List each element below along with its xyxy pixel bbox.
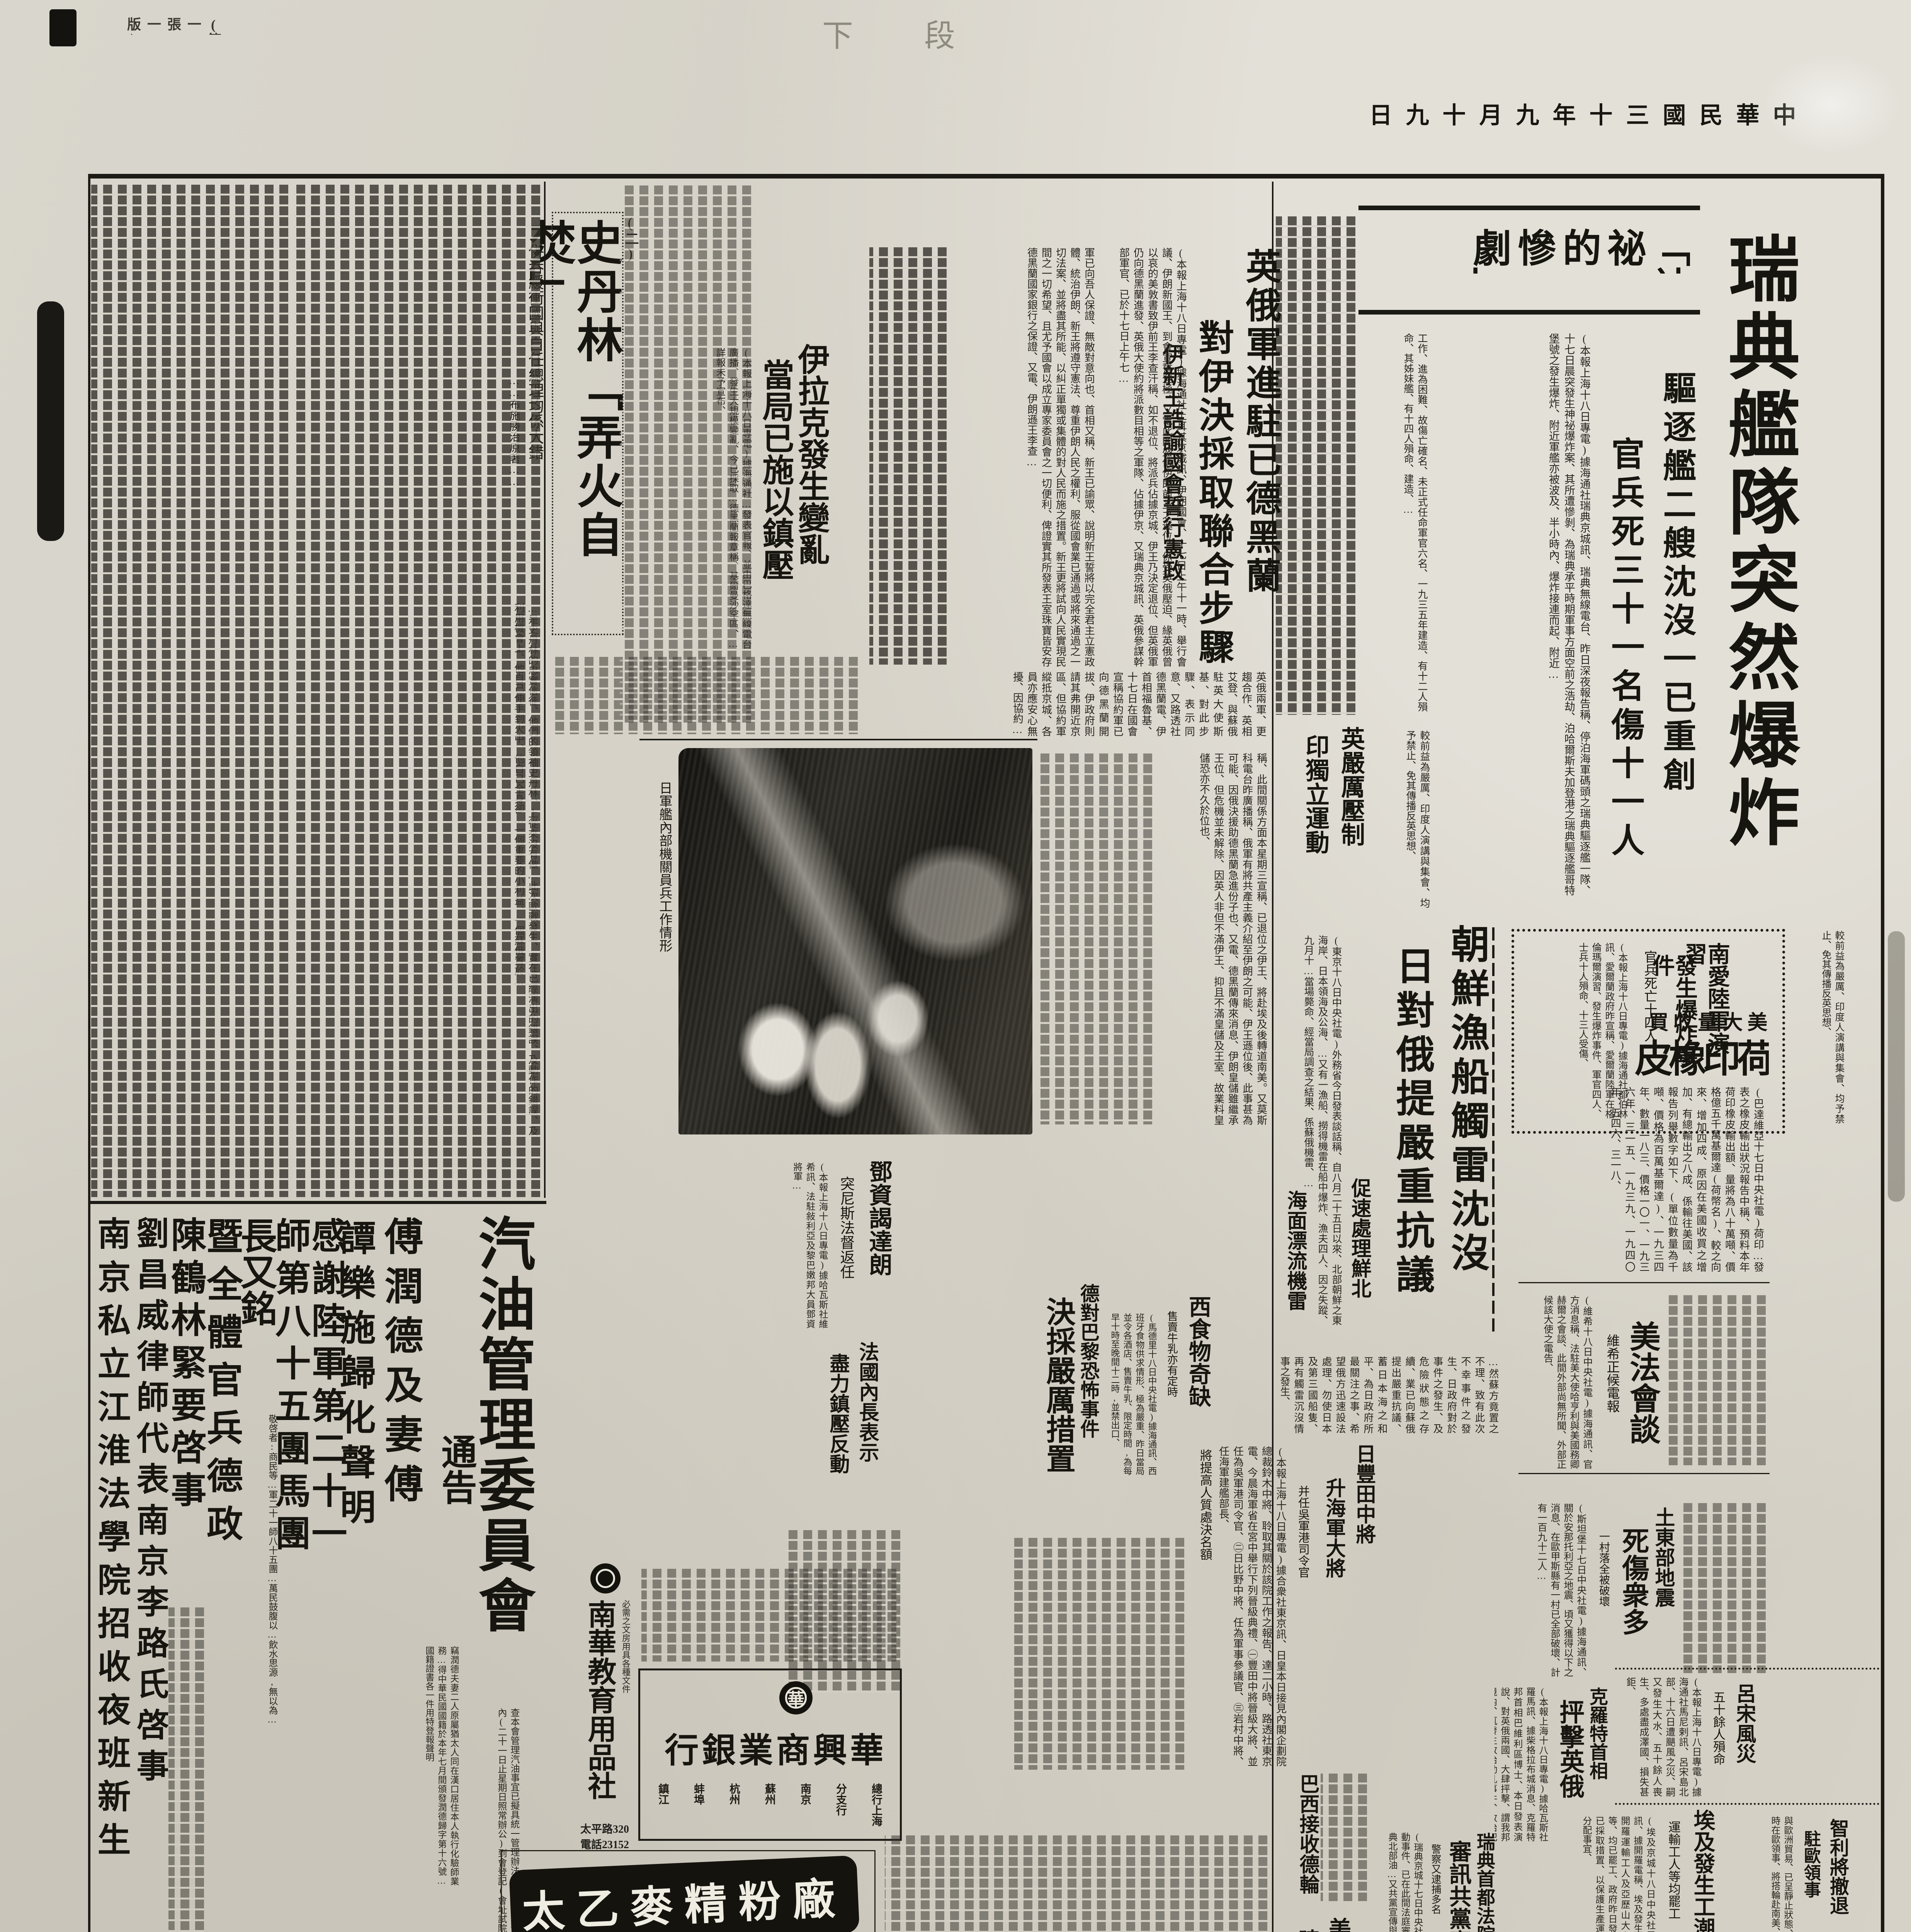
article-body: (本報上海十八日專電)據海通社馬尼剌訊、呂宋島北部、十六日遭颶風之災、嗣又發生大… [1627,1677,1702,1797]
korea-headline-2: 日對俄提嚴重抗議 [1386,946,1431,1332]
bank-logo-icon: 華 [779,1681,813,1714]
lead-subhead-1: 驅逐艦二艘沈沒一已重創 [1654,371,1693,827]
turkey-headline-2: 死傷衆多 [1615,1527,1647,1655]
rubber-headline-2: 荷印橡皮 [1631,1039,1769,1082]
article-body: 稱、此間關係方面本星期三宣稱、已退位之伊王、將赴埃及後轉道南美。又莫斯科電台昨廣… [1158,753,1268,1125]
usfrance-subhead: 維希正候電報 [1598,1334,1618,1461]
article-body: (東京十八日中央社電)外務省今日發表談話稱、自八月二十五日以來、北部朝鮮之東海岸… [1303,935,1343,1325]
egypt-subhead: 運輸工人等均罷工 [1662,1821,1680,1932]
croatia-headline-1: 克羅特首相 [1583,1687,1606,1795]
illegible-text-block [869,247,947,665]
spain-subhead: 售賣牛乳亦有定時 [1161,1311,1177,1458]
india-headline-2: 印獨立運動 [1297,734,1327,916]
luzon-subhead: 五十餘人殞命 [1708,1691,1725,1787]
article-body: (斯坦堡十七日中央社電)據海通訊、關於安那托利亞之地震、頃又獲得以下之消息、在歐… [1524,1503,1587,1677]
article-body: 軍已向吾人保證、無敵對意向也、首相又稱、新王已諭眾、說明新王誓將以完全君主立憲政… [953,247,1096,667]
ad-petrol-title: 汽油管理委員會 [470,1214,530,1678]
article-body: (馬德里十八日中央社電)據海通訊、西班牙食物供求情形、極為嚴重、昨日當局並令各酒… [1103,1313,1158,1475]
article-body: 工作、進為困難、故傷亡確名、未正式任命軍官六名、一九三五年建造、有十二人殞命、其… [1359,333,1429,712]
taiyi-banner: 太乙麥精粉廠 [509,1855,860,1932]
wavy-rule [1492,927,1494,1333]
ad-lawyer: 劉昌威律師代表南京李路氏啓事 [133,1216,166,1904]
left-rule [88,174,90,1932]
date-line: 中華民國三十年九月十九日 [1333,103,1800,130]
ad-chen: 陳鶴林緊要啓事 [171,1216,203,1580]
toyoda-headline-2: 升海軍大將 [1319,1478,1344,1586]
dentz-headline: 鄧資謁達朗 [862,1160,890,1311]
edge-smudge [37,301,64,541]
egypt-headline: 埃及發生工潮 [1687,1809,1713,1932]
korea-subhead-2: 海面漂流機雷 [1280,1190,1305,1352]
ad-nanhua-title: 南華教育用品社 [580,1600,614,1816]
article-body: …然蘇方竟置之不理、致有此次不幸事件之發生、日政府對於事件之發生、及危險狀態之存… [1277,1356,1500,1434]
franceint-headline-2: 盡力鎮壓反動 [824,1353,848,1515]
edge-smudge [1888,931,1905,1202]
article-body: 與歐洲貿易、已呈靜止狀態、現時在歐領事、將搭輪赴南美、 [1743,1816,1794,1932]
bank-ad-box: 華 華興商業銀行 總行上海分支行南京蘇州杭州蚌埠鎮江 [638,1668,902,1841]
paris-headline-1: 德對巴黎恐怖事件 [1076,1284,1098,1458]
swcourt-subhead: 警察又逮捕多名 [1426,1844,1440,1932]
ad-thanks-line3: 長又銘 [240,1217,274,1379]
bank-branch-label: 蚌埠 [690,1783,706,1830]
ad-thanks-line2: 師第八十五團馬團 [273,1217,308,1650]
bank-logo-char: 華 [779,1681,813,1714]
article-body: (維希十八日中央社電)據海通訊、官方消息稱、法駐美大使哈亨利與美國務卿赫爾之會談… [1524,1295,1593,1469]
india-headline-1: 英嚴厲壓制 [1332,726,1362,896]
article-body: (本報上海十八日專電)據海通社土耳其京城訊、伊朗國會、十七日上午十一時、舉行會議… [1100,247,1188,667]
photo-caption: 日軍艦內部機關員兵工作情形 [648,781,671,1036]
illegible-text-block [1276,216,1355,715]
ad-nanhua-address: 太平路320 [580,1821,629,1836]
iran-headline-2: 對伊決採取聯合步驟 [1192,319,1231,682]
illegible-text-block [620,185,751,723]
bank-branch-label: 南京 [797,1783,813,1830]
ad-nanhua-phone: 電話23152 [580,1836,629,1852]
article-body: (瑞典京城十七日中央社電)據海通訊、瑞典共黨活動事件、已在此間法庭審訊、警察又逮… [1377,1832,1423,1932]
ad-petrol-notice: 通告 [441,1434,474,1530]
masthead-fragment: 段 [924,11,955,56]
divider-rule [1518,1282,1770,1283]
newspaper-page: 中華民國三十年九月十九日 (第一張一版) 下 段 「神祕的慘劇」! 瑞典艦隊突然… [0,0,1911,1932]
chile-headline-2: 駐歐領事 [1800,1830,1819,1927]
spain-headline: 西食物奇缺 [1184,1295,1209,1427]
kicker-box: 「神祕的慘劇」! [1358,206,1700,315]
divider-rule [1518,1473,1770,1474]
article-body: 英俄兩軍、更趨合作、英相艾登、與蘇俄駐英大使斯基、對此步驟、表示同意、又路透社德… [869,672,1267,736]
bank-branch-label: 杭州 [726,1783,741,1830]
warship-photo [678,748,1032,1134]
korea-headline-1: 朝鮮漁船觸雷沈沒 [1440,924,1486,1291]
illegible-text-block [168,1607,204,1932]
ad-nanhua-side: 必需之文房用具各種文件 [614,1600,631,1801]
illegible-text-block [1321,1774,1367,1901]
article-body: 較前益為嚴厲、印度人演講與集會、均予禁止、免其傳播反英思想、 [1365,730,1431,908]
franceint-headline-1: 法國內長表示 [853,1342,877,1504]
illegible-text-block [641,1569,896,1662]
section-rule [88,1201,546,1204]
luzon-headline: 呂宋風災 [1730,1683,1754,1772]
article-body: (本報上海十八日專電)據海通社瑞典京城訊、瑞典無線電台、昨日深夜報告稱、停泊海軍… [1434,333,1592,896]
article-body: (埃及京城十八日中央社電)據海通訊、據開羅電稱、埃及發生罷工事件、開羅運輸工人及… [1579,1816,1656,1932]
column-rule [544,182,546,1198]
top-rule [88,174,1884,179]
bank-branches: 總行上海分支行南京蘇州杭州蚌埠鎮江 [652,1783,884,1830]
toyoda-subhead: 并任吳軍港司令官 [1291,1485,1308,1617]
iraq-headline-1: 伊拉克發生變亂 [791,343,827,629]
usfrance-headline: 美法會談 [1622,1321,1658,1460]
article-body: (巴達維亞十七日中央社電)荷印…發表之橡皮輸出狀況報告中稱、預料本年荷印橡皮輸出… [1519,1087,1765,1272]
bank-branch-label: 鎮江 [655,1783,670,1830]
swcourt-headline-2: 審訊共黨案件 [1444,1840,1470,1932]
article-body: (本報上海十八日專電)據哈瓦斯社羅馬訊、據柴格拉布城消息、克羅特邦首相巴維利區博… [1494,1687,1549,1842]
nanhua-logo-icon [590,1563,621,1594]
swcourt-headline-1: 瑞典首都法院 [1471,1832,1493,1932]
illegible-text-block [1014,1538,1184,1770]
paris-subhead: 將提高人質處決名額 [1195,1449,1212,1658]
dotted-rule [1615,1668,1883,1671]
lead-headline: 瑞典艦隊突然爆炸 [1714,232,1793,866]
illegible-text-block [1040,753,1152,1124]
turkey-subhead: 一村落全被破壞 [1593,1531,1609,1662]
croatia-headline-2: 抨擊英俄 [1554,1699,1583,1815]
illegible-text-block [293,185,540,1197]
rubber-headline-1: 美大量收買 [1637,1012,1767,1034]
article-body: (本報上海十八日專電)據哈瓦斯社維希訊、法駐敍利亞及黎巴嫩邦大員鄧資將軍… [785,1162,828,1328]
taiyi-ad-box: 太乙麥精粉廠 雙桃牌 麥精粉 手紅味一 牌听味一 總經理朱敬記行各南貨食店均有售 [501,1850,876,1932]
paris-headline-2: 決採嚴厲措置 [1039,1297,1073,1529]
ad-fu-line2: 譚樂施歸化聲明 [337,1219,372,1668]
bank-branch-label: 分支行 [833,1783,848,1830]
ad-thanks-line4: 暨全體官兵德政 [204,1217,240,1627]
edition-note: (第一張一版) [53,17,223,35]
ad-fu-line1: 傅潤德及妻傅 [379,1216,420,1626]
dotted-rule [1615,1803,1883,1806]
illegible-text-block [91,185,288,1197]
iraq-headline-2: 當局已施以鎮壓 [756,359,791,645]
illegible-text-block [885,1835,1267,1932]
article-body: 較前益為嚴厲、印度人演講與集會、均予禁止、免其傳播反英思想、 [1787,930,1845,1124]
korea-subhead-1: 促速處理鮮北 [1344,1178,1369,1344]
arsenal-headline-2: 建造新軍火廠 [1295,1929,1319,1932]
dentz-subhead: 突尼斯法督返任 [833,1176,853,1311]
kicker-headline: 「神祕的慘劇」! [1365,228,1690,274]
ad-school: 南京私立江淮法學院招收夜班新生 [94,1216,128,1932]
bank-branch-label: 蘇州 [762,1783,777,1830]
masthead-fragment: 下 [822,11,853,56]
brazil-headline: 巴西接收德輪 [1293,1774,1318,1901]
bank-name: 華興商業銀行 [658,1732,882,1771]
illegible-text-block [1681,1503,1766,1673]
illegible-text-block [1665,1295,1766,1465]
toyoda-headline-1: 日豐田中將 [1349,1444,1374,1560]
lead-subhead-2: 官兵死三十一名傷十一人 [1603,437,1641,908]
photo-rule [639,739,1037,740]
bank-branch-label: 總行上海 [868,1783,884,1830]
arsenal-headline-1: 美撥八千萬元 [1325,1917,1349,1932]
turkey-headline-1: 土東部地震 [1648,1507,1673,1623]
stalin-headline: 史丹林「弄火自焚」 [552,212,624,635]
chile-headline-1: 智利將撤退 [1825,1818,1848,1932]
iran-headline-1: 英俄軍進駐已德黑蘭 [1239,248,1278,611]
